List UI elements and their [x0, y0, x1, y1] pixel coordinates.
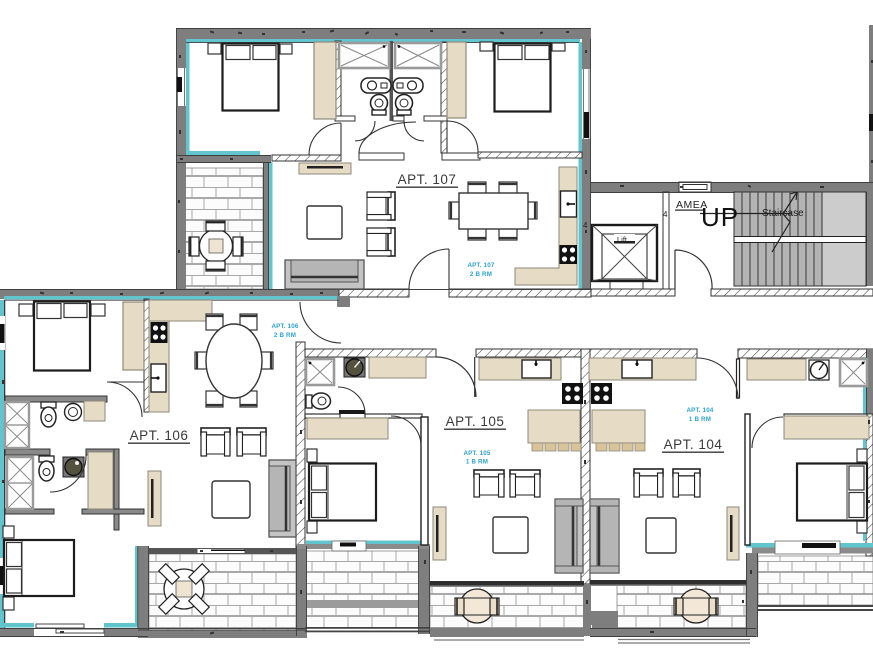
- svg-text:Staircase: Staircase: [762, 208, 804, 219]
- svg-text:APT. 107: APT. 107: [467, 262, 494, 269]
- svg-text:4: 4: [663, 210, 668, 219]
- svg-text:APT. 106: APT. 106: [271, 323, 298, 330]
- svg-text:4: 4: [583, 221, 588, 230]
- svg-text:APT. 104: APT. 104: [686, 407, 713, 414]
- svg-text:2 B RM: 2 B RM: [470, 271, 492, 278]
- svg-text:UP: UP: [701, 202, 739, 232]
- svg-text:APT. 104: APT. 104: [664, 437, 723, 452]
- svg-text:APT. 105: APT. 105: [463, 450, 490, 457]
- svg-text:1 B RM: 1 B RM: [466, 459, 488, 466]
- svg-text:1 B RM: 1 B RM: [689, 416, 711, 423]
- svg-text:APT. 106: APT. 106: [130, 428, 189, 443]
- svg-text:2 B RM: 2 B RM: [274, 332, 296, 339]
- svg-text:APT. 105: APT. 105: [446, 414, 505, 429]
- svg-text:APT. 107: APT. 107: [398, 172, 457, 187]
- svg-text:Lift: Lift: [617, 235, 628, 244]
